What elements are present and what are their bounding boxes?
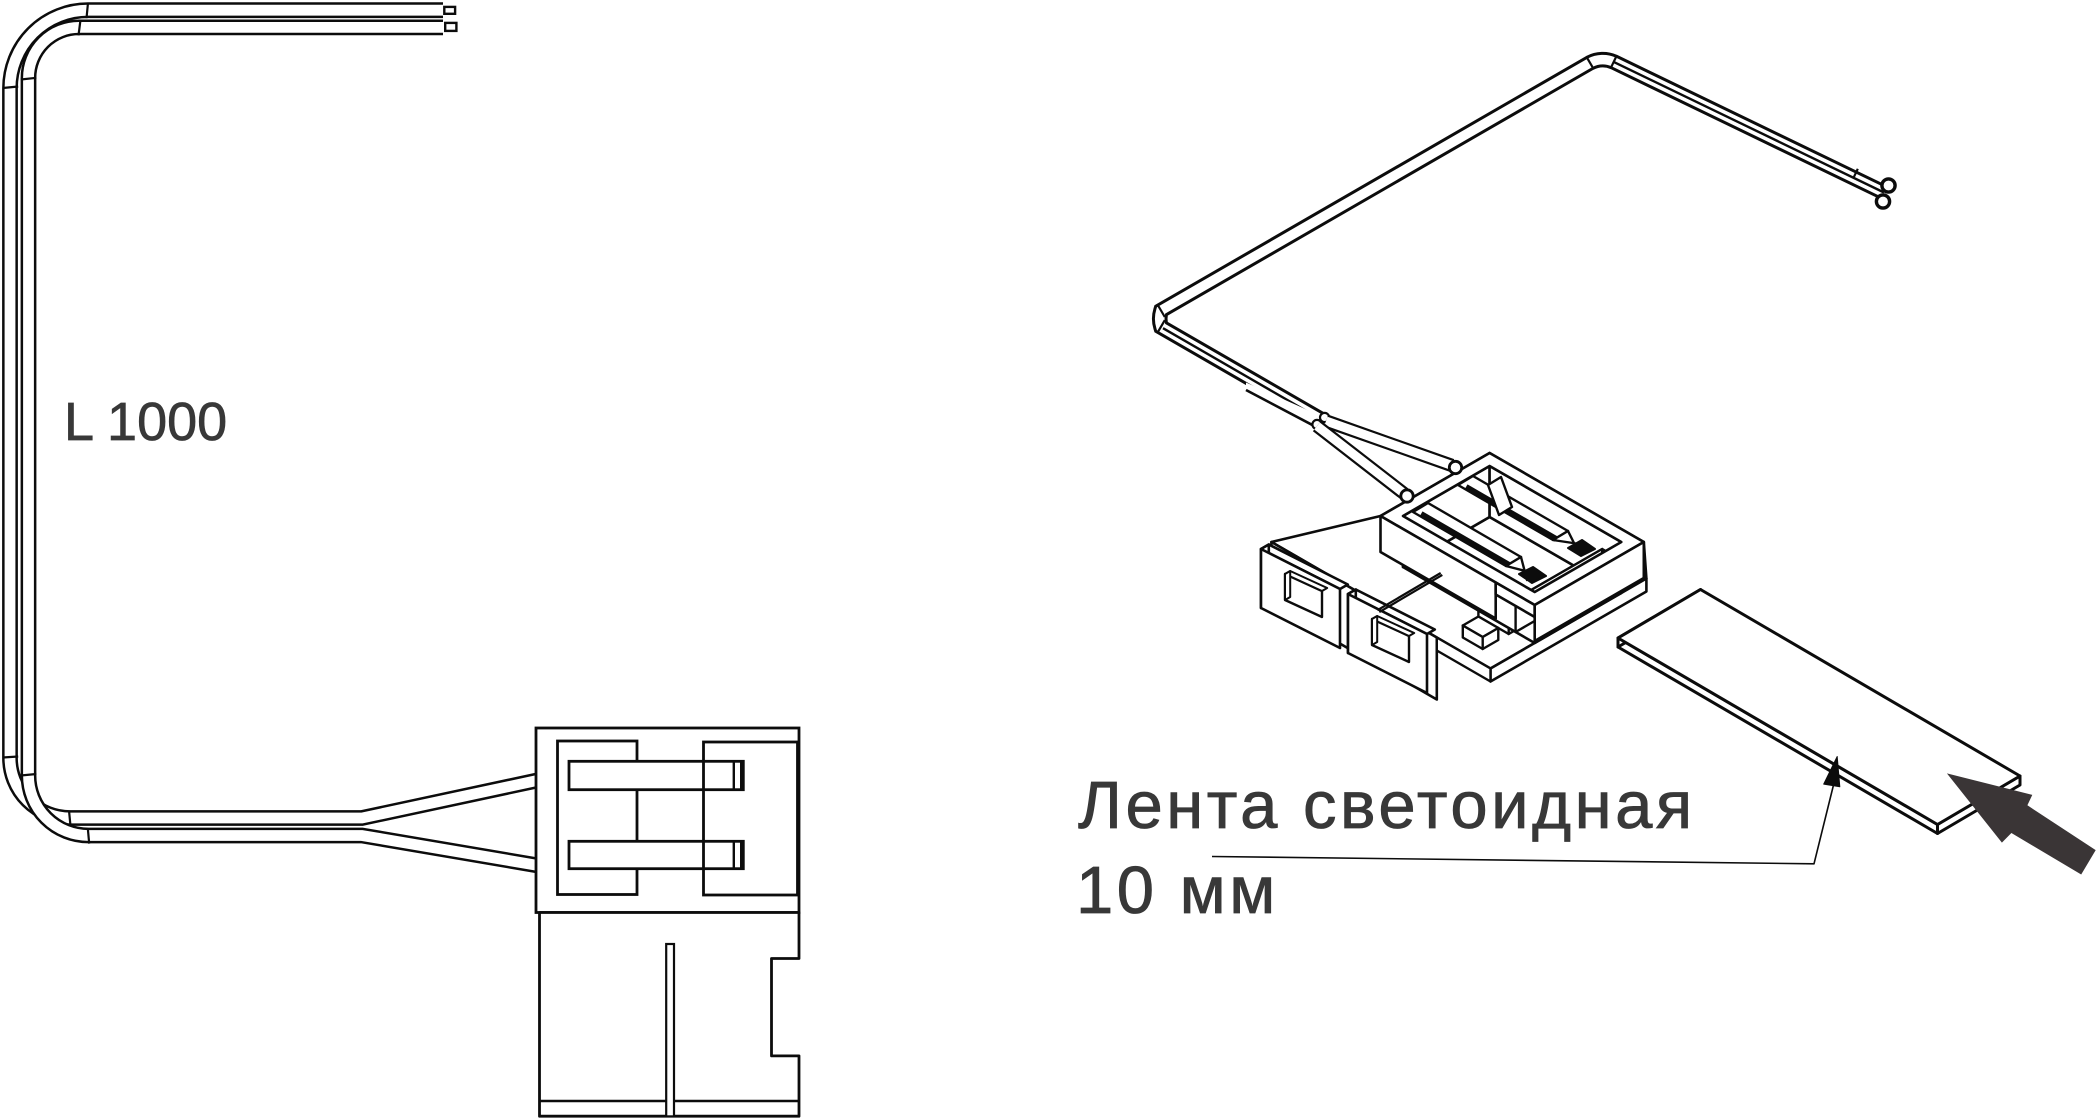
svg-text:Лента светоидная: Лента светоидная [1078, 768, 1696, 843]
svg-text:L 1000: L 1000 [64, 392, 227, 452]
svg-text:10 мм: 10 мм [1076, 853, 1279, 928]
